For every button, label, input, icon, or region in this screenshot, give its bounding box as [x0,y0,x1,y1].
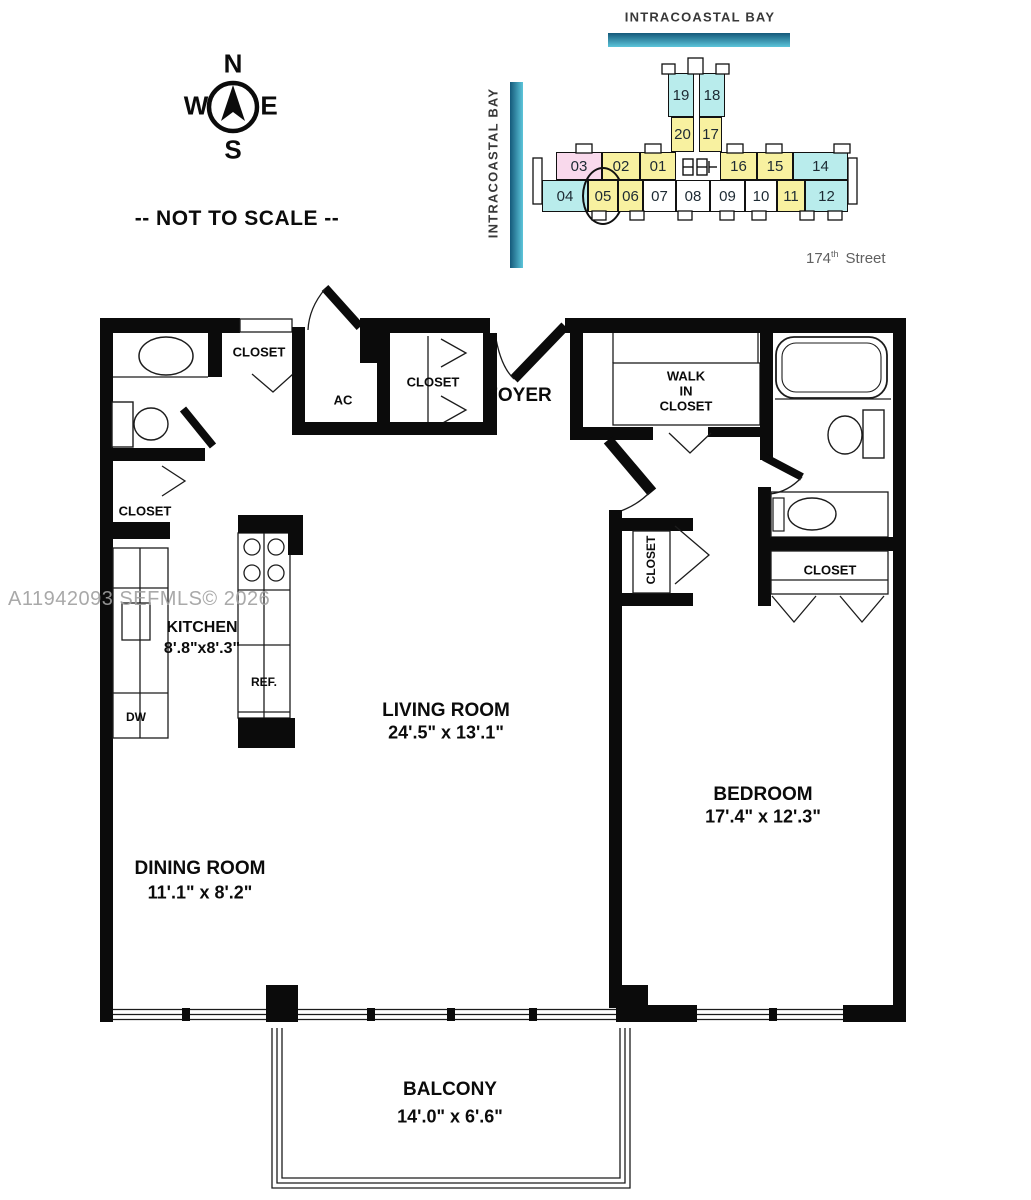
stove-burner-icon [268,539,284,555]
dishwasher-label: DW [126,710,146,724]
unit-01: 01 [640,152,676,180]
unit-16: 16 [720,152,757,180]
outer-walls [100,318,906,1022]
unit-06: 06 [618,180,643,212]
walk-in-closet-label-1: WALK [667,369,705,384]
stove-burner-icon [268,565,284,581]
compass-south-label: S [224,135,241,166]
kitchen-label: KITCHEN [166,619,237,637]
living-room-label: LIVING ROOM [382,700,510,722]
balcony-dims: 14'.0" x 6'.6" [397,1107,503,1128]
elevator-core-icon [683,159,717,175]
unit-08: 08 [676,180,710,212]
mls-watermark: A11942093 SEFMLS© 2026 [8,588,270,611]
stove-burner-icon [244,539,260,555]
refrigerator-label: REF. [251,675,277,689]
bathroom1-toilet-icon [134,408,168,440]
balcony-label: BALCONY [403,1079,497,1101]
bedroom-entry [608,440,652,1008]
closet-label-entry: CLOSET [233,345,286,360]
street-name: Street [846,250,886,267]
unit-19: 19 [668,73,694,117]
unit-18: 18 [699,73,725,117]
bathroom2-door [764,457,802,477]
compass-west-label: W [184,91,209,122]
entry-door [495,326,565,379]
linen-closet [108,466,185,539]
unit-12: 12 [805,180,848,212]
closet-label-master: CLOSET [804,563,857,578]
walk-in-closet-label-3: CLOSET [660,399,713,414]
bedroom-door-arc [612,492,650,514]
street-number: 174 [806,250,831,267]
floorplan-sheet: INTRACOASTAL BAY INTRACOASTAL BAY 174thS… [0,0,1031,1200]
kitchen-walls [238,515,303,748]
bay-label-top: INTRACOASTAL BAY [625,10,775,25]
bottom-window-wall [113,985,906,1022]
bathroom1-door [183,409,213,446]
unit-09: 09 [710,180,745,212]
ac-label: AC [334,393,353,408]
unit-17: 17 [699,117,722,152]
unit-15: 15 [757,152,793,180]
bay-label-left: INTRACOASTAL BAY [486,88,501,238]
intracoastal-bay-bar-top [608,33,790,47]
ac-closet [292,288,390,435]
bedroom-label: BEDROOM [713,784,812,806]
not-to-scale-note: -- NOT TO SCALE -- [135,207,340,231]
bathroom2-sink-icon [788,498,836,530]
living-room-dims: 24'.5" x 13'.1" [388,723,504,744]
closet-label-linen: CLOSET [119,504,172,519]
unit-11: 11 [777,180,805,212]
street-label: 174thStreet [806,249,886,267]
unit-14: 14 [793,152,848,180]
unit-07: 07 [643,180,676,212]
intracoastal-bay-bar-left [510,82,523,268]
bathroom2-toilet-tank-icon [863,410,884,458]
dining-room-label: DINING ROOM [135,858,266,880]
unit-20: 20 [671,117,694,152]
unit-10: 10 [745,180,777,212]
compass-icon [209,83,257,131]
compass-east-label: E [260,91,277,122]
compass-north-label: N [224,49,243,80]
bedroom-closet [622,518,709,606]
bathroom1-toilet-tank-icon [112,402,133,447]
bathroom2-toilet-icon [828,416,862,454]
walk-in-closet-label-2: IN [680,384,693,399]
bedroom-dims: 17'.4" x 12'.3" [705,807,821,828]
closet-label-bedroom: CLOSET [644,536,658,585]
closet-label-coat: CLOSET [407,375,460,390]
north-arrow-icon [221,85,245,121]
street-ordinal: th [831,249,839,259]
bathtub-icon [776,337,887,398]
kitchen-dims: 8'.8"x8'.3" [164,640,240,658]
walk-in-closet [570,333,763,453]
bathroom1 [100,333,222,461]
foyer-label: FOYER [486,385,551,407]
stove-burner-icon [244,565,260,581]
bathroom1-sink-icon [139,337,193,375]
dining-room-dims: 11'.1" x 8'.2" [148,883,253,904]
